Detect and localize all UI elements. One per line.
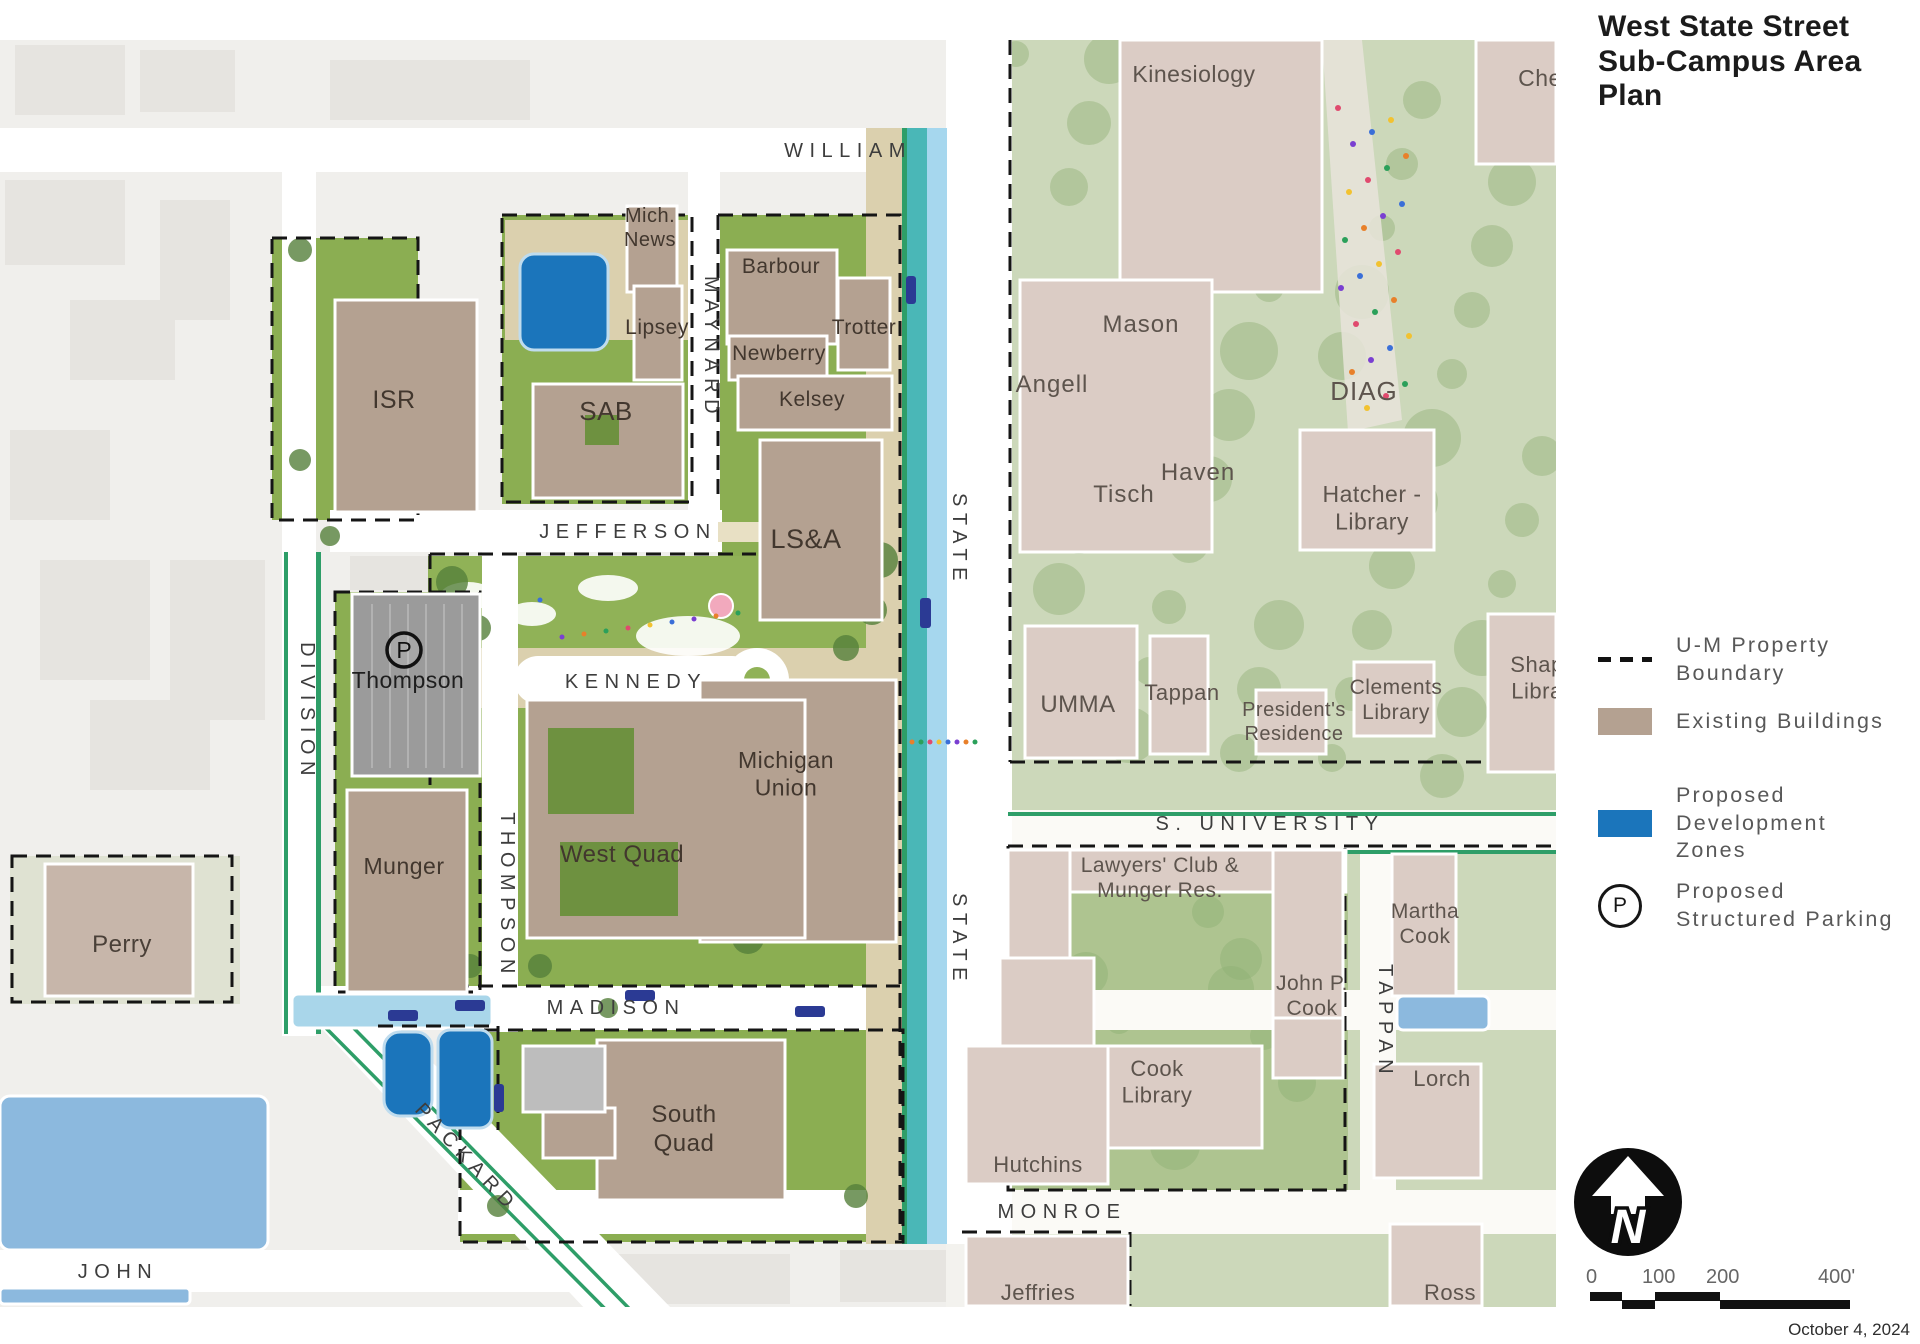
building-label-thompson: Thompson [352,667,465,693]
parking-circle-icon: P [1598,884,1652,928]
building-lawyers-club [1273,1018,1343,1078]
boundary-dash-icon [1598,657,1652,662]
building-label-lipsey: Lipsey [625,316,689,339]
building-label-sab: SAB [579,396,633,426]
legend-item-existing: Existing Buildings [1598,708,1894,736]
transit-marker [494,1084,504,1112]
building-label-munger: Munger [364,853,445,879]
building-label-mich-news: Mich. [625,205,675,227]
transit-marker [455,1000,485,1011]
building-label-perry: Perry [92,931,152,958]
street-label-division: DIVISION [296,642,318,782]
building-label-kinesiology: Kinesiology [1132,61,1255,87]
building-label-barbour: Barbour [742,255,820,278]
transit-marker [795,1006,825,1017]
tree [289,449,311,471]
building-label-john-p-cook: John P. [1276,972,1348,995]
transit-marker [920,598,931,628]
building-label-ross: Ross [1424,1280,1476,1305]
faded-development-zone [0,1096,268,1250]
building-label-clements: Library [1362,701,1430,724]
street-label-john: JOHN [78,1261,158,1283]
building-label-lawyers-club: Munger Res. [1097,879,1223,902]
building-gray-bldg [523,1046,605,1112]
building-label-hutchins: Hutchins [993,1152,1083,1177]
street-label-maynard: MAYNARD [700,276,722,420]
building-label-hatcher: Library [1335,509,1409,535]
north-arrow-icon: N [1572,1146,1684,1258]
building-label-michigan-union: Michigan [738,747,834,773]
building-label-lawyers-club: Lawyers' Club & [1081,854,1240,877]
building-perry [45,864,193,996]
street-label-tappan: TAPPAN [1374,964,1396,1080]
legend-label: Proposed Development Zones [1676,782,1894,865]
building-label-presidents-residence: President's [1242,699,1346,721]
building-munger [347,790,467,992]
street-label-state: STATE [948,893,970,987]
legend-label: U-M Property Boundary [1676,632,1894,687]
building-label-jeffries: Jeffries [1001,1280,1076,1305]
legend-item-boundary: U-M Property Boundary [1598,632,1894,687]
legend-label: Existing Buildings [1676,708,1894,736]
tree [844,1184,868,1208]
proposed-swatch-icon [1598,810,1652,837]
area-label-mason: Mason [1102,311,1179,338]
proposed-development-zone [520,254,608,350]
street-label-s-university: S. UNIVERSITY [1156,813,1385,835]
street-label-state: STATE [948,493,970,587]
plan-date: October 4, 2024 [1788,1320,1910,1340]
tree [288,238,312,262]
legend-label: Proposed Structured Parking [1676,878,1894,933]
street-label-jefferson: JEFFERSON [539,521,716,543]
building-label-south-quad: Quad [654,1130,715,1157]
street-label-monroe: MONROE [998,1201,1127,1223]
street-label-kennedy: KENNEDY [565,671,707,693]
building-che [1476,40,1556,164]
street-label-william: WILLIAM [784,140,912,162]
building-south-quad [543,1108,615,1158]
building-label-cook-library: Cook [1130,1056,1184,1081]
building-label-kelsey: Kelsey [779,388,845,411]
playground-circle [709,594,733,618]
area-label-haven: Haven [1161,459,1235,486]
building-label-cook-library: Library [1122,1082,1193,1107]
building-label-trotter: Trotter [832,316,897,339]
tree [833,635,859,661]
building-label-michigan-union: Union [755,775,818,801]
transit-marker [388,1010,418,1021]
building-label-lorch: Lorch [1413,1066,1471,1091]
building-label-tappan-bldg: Tappan [1144,680,1219,705]
street-label-thompson: THOMPSON [496,812,518,980]
legend-item-parking: P Proposed Structured Parking [1598,878,1894,933]
parking-symbol-letter: P [396,637,411,663]
building-label-west-quad: West Quad [560,841,684,868]
street-label-madison: MADISON [547,997,686,1019]
building-label-hatcher: Hatcher - [1322,481,1421,507]
building-label-newberry: Newberry [732,342,826,365]
building-label-john-p-cook: Cook [1286,997,1337,1020]
scale-tick: 0 [1586,1266,1597,1289]
area-label-angell: Angell [1016,371,1089,398]
building-label-mich-news: News [624,229,676,251]
side-panel: West State Street Sub-Campus Area Plan U… [1556,0,1920,1344]
existing-swatch-icon [1598,708,1652,735]
tree [320,526,340,546]
building-label-clements: Clements [1350,676,1443,699]
proposed-development-zone [438,1030,492,1128]
building-label-lsa: LS&A [770,524,841,554]
faded-development-zone [1397,996,1489,1030]
building-label-isr: ISR [372,386,415,414]
building-label-martha-cook: Martha [1391,900,1459,923]
map-layers: PMich.NewsLipseySABISRBarbourNewberryTro… [0,34,1564,1344]
faded-development-zone [0,1288,190,1304]
scale-tick: 200 [1706,1266,1739,1289]
scale-tick: 400' [1818,1266,1855,1289]
area-label-tisch: Tisch [1093,481,1154,508]
north-letter: N [1611,1201,1647,1254]
building-label-martha-cook: Cook [1399,925,1450,948]
building-label-south-quad: South [651,1101,716,1128]
page-title: West State Street Sub-Campus Area Plan [1598,10,1876,114]
building-label-presidents-residence: Residence [1244,723,1343,745]
scale-tick: 100 [1642,1266,1675,1289]
street [0,128,906,172]
transit-marker [906,276,916,304]
tree [528,954,552,978]
legend-item-proposed: Proposed Development Zones [1598,782,1894,865]
page: { "panel": { "title": "West State Street… [0,0,1920,1344]
building-clements [1354,662,1434,736]
area-label-diag: DIAG [1330,376,1398,406]
building-label-umma: UMMA [1040,691,1115,718]
